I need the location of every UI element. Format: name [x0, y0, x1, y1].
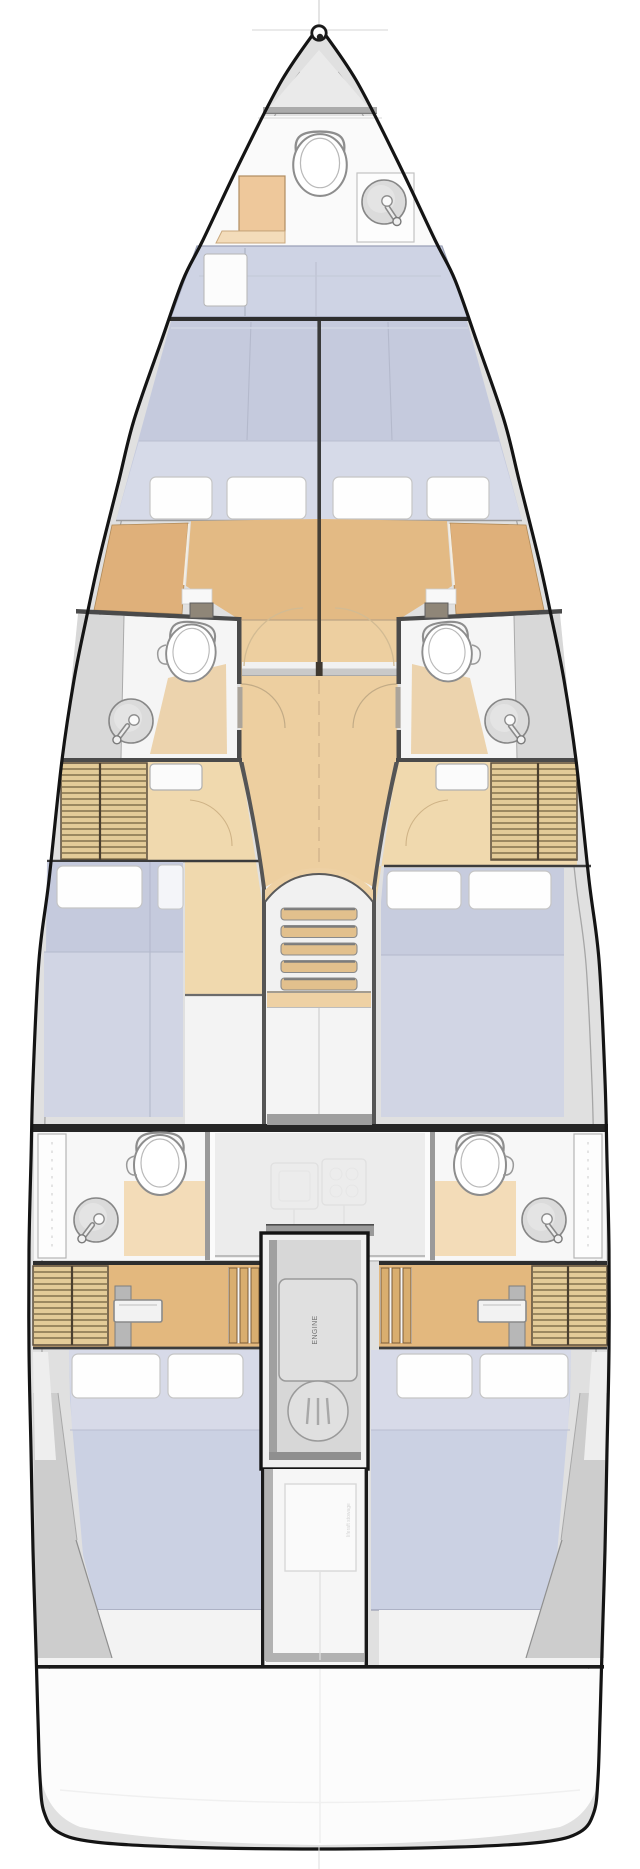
svg-text:liferaft stowage: liferaft stowage	[346, 1503, 352, 1537]
svg-text:ENGINE: ENGINE	[312, 1315, 319, 1344]
